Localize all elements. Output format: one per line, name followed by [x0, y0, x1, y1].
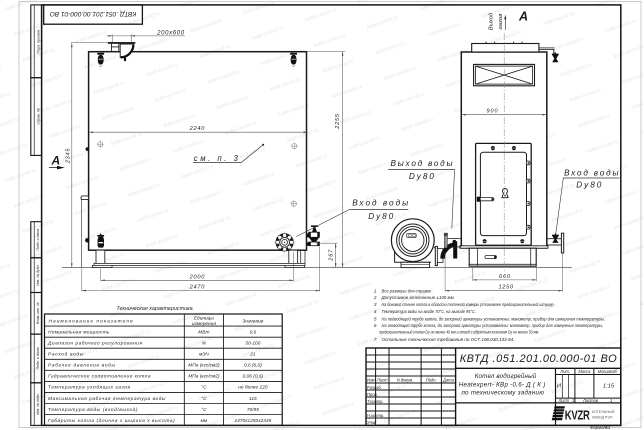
svg-text:1: 1 [572, 398, 574, 403]
svg-text:Все размеры для справок: Все размеры для справок [382, 288, 432, 293]
svg-text:N докум.: N докум. [397, 378, 414, 383]
svg-text:Расход воды: Расход воды [48, 352, 84, 358]
svg-text:Н.контр.: Н.контр. [367, 413, 384, 418]
svg-text:Масштаб: Масштаб [598, 369, 618, 374]
svg-text:КОТЕЛЬНЫЙ: КОТЕЛЬНЫЙ [592, 410, 615, 414]
svg-text:50-100: 50-100 [245, 341, 260, 347]
svg-text:Изм: Изм [367, 378, 375, 383]
svg-text:МПа (кгс/см2): МПа (кгс/см2) [188, 363, 220, 369]
svg-text:Диапазон рабочего регулировани: Диапазон рабочего регулирования [47, 341, 142, 347]
svg-text:70/95: 70/95 [247, 407, 259, 413]
svg-text:КВТД .051.201.00.000-01 ВО: КВТД .051.201.00.000-01 ВО [50, 10, 137, 17]
svg-text:Рабочее давление воды: Рабочее давление воды [48, 363, 115, 369]
svg-text:Подп. и дата: Подп. и дата [36, 229, 40, 251]
svg-text:Допустимое отклонение ±100 мм.: Допустимое отклонение ±100 мм. [381, 295, 455, 300]
svg-text:Масса: Масса [578, 369, 591, 374]
svg-text:Температура уходящих газов: Температура уходящих газов [48, 385, 130, 391]
svg-text:%: % [202, 341, 207, 347]
svg-text:Техническая характеристика: Техническая характеристика [116, 306, 192, 312]
svg-text:Т.контр.: Т.контр. [367, 399, 384, 404]
svg-text:Максимальная рабочая температу: Максимальная рабочая температура воды [48, 396, 166, 402]
svg-text:Инв. № дубл.: Инв. № дубл. [36, 264, 40, 286]
svg-text:На боковой стенке котла в обла: На боковой стенке котла в области топочн… [382, 301, 554, 307]
svg-text:KVZR: KVZR [565, 409, 590, 423]
svg-text:A: A [518, 10, 528, 24]
svg-text:МПа (кгс/см2): МПа (кгс/см2) [188, 374, 220, 380]
svg-text:м3/ч: м3/ч [199, 352, 209, 358]
svg-text:°С: °С [201, 385, 207, 391]
svg-text:660: 660 [499, 274, 511, 280]
svg-text:200х600: 200х600 [156, 30, 185, 36]
svg-text:предохранительный клапан Dу не: предохранительный клапан Dу не менее 40 … [379, 329, 539, 335]
svg-text:4: 4 [374, 309, 377, 314]
svg-text:°С: °С [201, 407, 207, 413]
svg-text:Вход воды: Вход воды [564, 168, 618, 177]
svg-text:°С: °С [201, 396, 207, 402]
svg-text:На отводящей трубе котла, до з: На отводящей трубе котла, до запорной ар… [382, 322, 604, 328]
svg-text:Утв.: Утв. [367, 420, 376, 425]
svg-text:21: 21 [249, 352, 256, 358]
svg-text:2: 2 [373, 295, 377, 300]
svg-text:267: 267 [328, 249, 334, 262]
svg-text:Выход воды: Выход воды [391, 159, 453, 168]
svg-text:Подп. и дата: Подп. и дата [36, 347, 40, 369]
svg-text:А3: А3 [604, 425, 611, 430]
svg-text:5: 5 [374, 316, 377, 321]
svg-text:Дата: Дата [442, 378, 455, 383]
svg-text:Единицы: Единицы [194, 316, 215, 322]
svg-text:Лит.: Лит. [559, 369, 570, 374]
svg-text:не более 220: не более 220 [238, 385, 268, 391]
svg-text:900: 900 [487, 109, 498, 115]
svg-text:Разраб.: Разраб. [367, 385, 382, 390]
svg-text:Инв. № подл.: Инв. № подл. [36, 393, 40, 415]
svg-text:3: 3 [374, 302, 377, 307]
svg-text:1:15: 1:15 [603, 384, 615, 390]
svg-text:2470: 2470 [189, 285, 206, 291]
svg-text:1: 1 [610, 398, 612, 403]
svg-text:6: 6 [374, 323, 377, 328]
svg-text:Лист: Лист [558, 398, 570, 403]
svg-text:Выход: Выход [488, 12, 494, 30]
svg-text:по техническому заданию: по техническому заданию [462, 390, 545, 397]
svg-text:2240: 2240 [189, 126, 206, 132]
svg-text:газов: газов [498, 14, 504, 30]
svg-text:Значение: Значение [242, 319, 263, 325]
svg-text:измерения: измерения [192, 322, 216, 327]
svg-text:МВт: МВт [198, 330, 209, 336]
svg-text:A: A [51, 154, 61, 168]
svg-text:0,06 (0,6): 0,06 (0,6) [243, 374, 264, 380]
svg-text:мм: мм [201, 419, 208, 424]
svg-text:1250: 1250 [498, 285, 514, 291]
svg-text:2345: 2345 [66, 148, 72, 165]
svg-text:Номинальная мощность: Номинальная мощность [48, 330, 110, 336]
svg-text:Температура воды (вход/выход): Температура воды (вход/выход) [48, 407, 138, 413]
svg-text:Температура воды на входе 70°С: Температура воды на входе 70°С, на выход… [382, 309, 476, 314]
svg-text:115: 115 [249, 396, 257, 402]
svg-text:Справ. №: Справ. № [36, 108, 40, 125]
svg-text:2470х1250х2345: 2470х1250х2345 [233, 418, 271, 424]
svg-text:7: 7 [374, 337, 377, 342]
svg-text:Перв. примен.: Перв. примен. [36, 29, 40, 54]
svg-text:Котел водогрейный: Котел водогрейный [475, 373, 537, 380]
svg-text:2000: 2000 [189, 274, 206, 280]
svg-text:Гидравлическое сопротивление к: Гидравлическое сопротивление котла [48, 374, 151, 380]
svg-text:0,6: 0,6 [250, 330, 257, 336]
svg-text:0,6 (6,0): 0,6 (6,0) [244, 363, 262, 369]
svg-text:Вход воды: Вход воды [352, 199, 408, 208]
svg-text:На подводящей трубе котла, до: На подводящей трубе котла, до запорной а… [382, 315, 605, 321]
svg-text:Габариты котла (длинна х ширин: Габариты котла (длинна х ширина х высота… [48, 418, 175, 424]
svg-text:Подп.: Подп. [426, 378, 437, 383]
svg-text:Остальные технические требован: Остальные технические требования по ОСТ … [382, 337, 515, 342]
svg-text:Пров.: Пров. [367, 392, 378, 397]
svg-text:2255: 2255 [335, 113, 341, 130]
svg-text:Лист: Лист [376, 378, 388, 383]
svg-text:Heatexpert- КВр -0,6- Д ( К ): Heatexpert- КВр -0,6- Д ( К ) [459, 381, 546, 388]
svg-text:Наименование показателя: Наименование показателя [49, 319, 133, 325]
svg-text:ЗАВОД РЭП: ЗАВОД РЭП [592, 415, 613, 419]
svg-text:1: 1 [374, 288, 377, 293]
svg-text:КВТД .051.201.00.000-01 ВО: КВТД .051.201.00.000-01 ВО [460, 353, 617, 365]
svg-text:Взам. инв. №: Взам. инв. № [36, 302, 40, 324]
svg-text:Листов: Листов [582, 398, 599, 403]
